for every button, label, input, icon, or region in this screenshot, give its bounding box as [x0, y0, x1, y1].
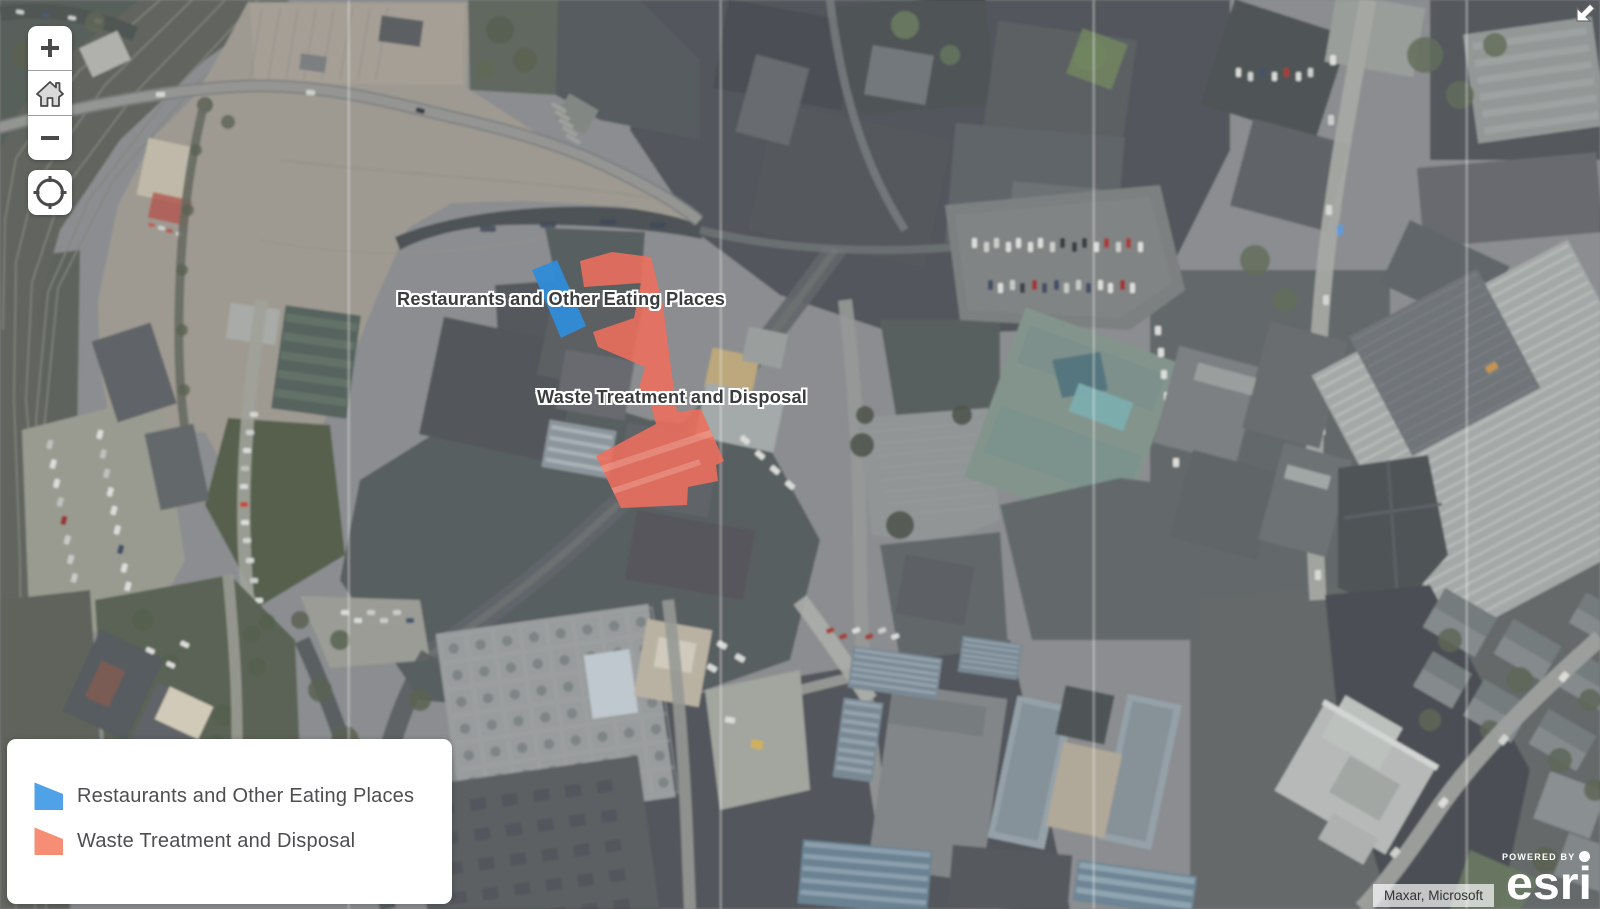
svg-text:esri: esri [1506, 862, 1592, 902]
